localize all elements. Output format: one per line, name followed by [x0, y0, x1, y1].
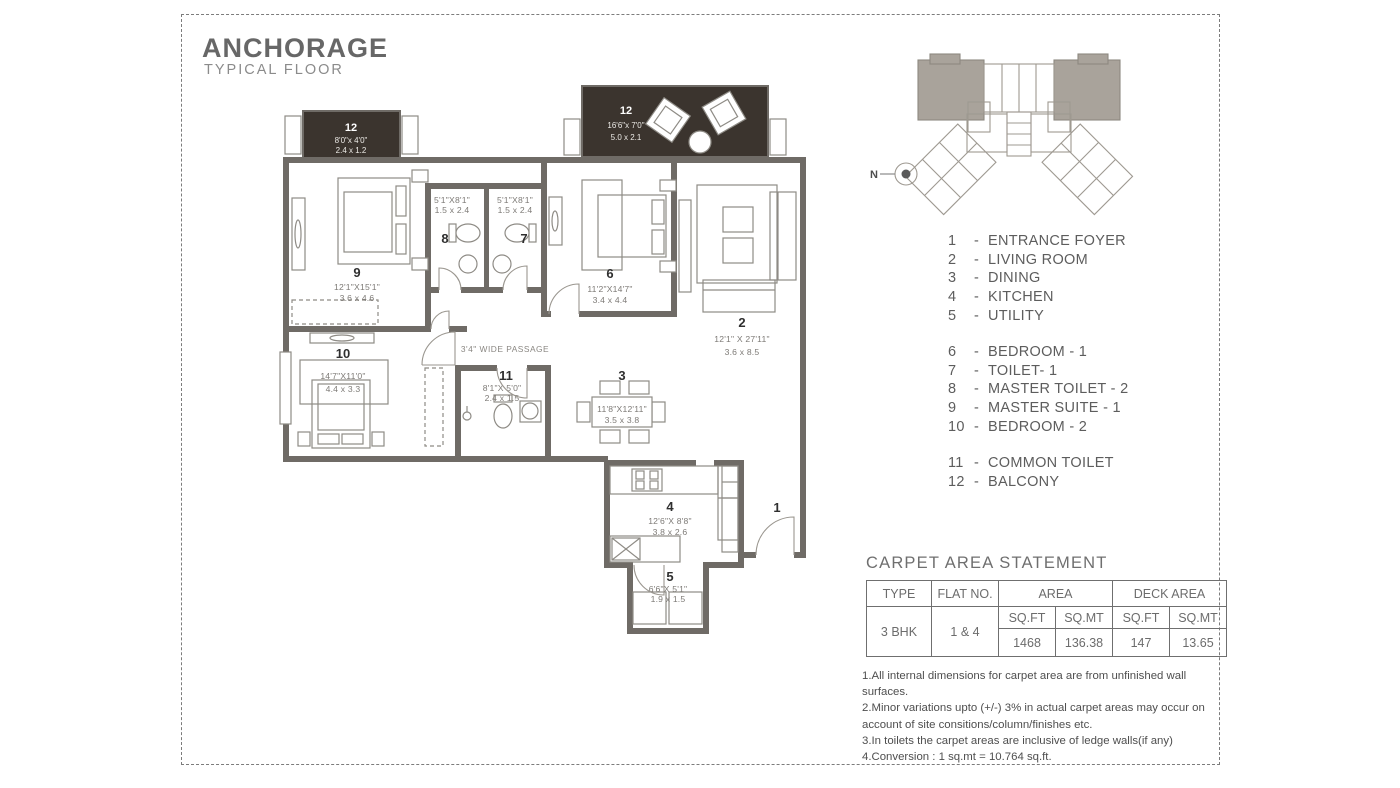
- legend-group-1: 1-ENTRANCE FOYER 2-LIVING ROOM 3-DINING …: [948, 232, 1128, 325]
- room-dim-ft: 16'6"x 7'0": [607, 121, 644, 130]
- room-dim-m: 4.4 x 3.3: [326, 384, 361, 394]
- room-dim-ft: 14'7"X11'0": [320, 371, 365, 381]
- window-icon: [285, 116, 301, 154]
- dresser-icon: [292, 198, 305, 270]
- col-area-sqmt: SQ.MT: [1056, 607, 1113, 629]
- legend-item: 1-ENTRANCE FOYER: [948, 232, 1128, 251]
- legend-label: BALCONY: [988, 474, 1059, 490]
- room-dim-ft: 12'1" X 27'11": [714, 334, 770, 344]
- room-legend: 1-ENTRANCE FOYER 2-LIVING ROOM 3-DINING …: [948, 232, 1128, 509]
- room-11-common-toilet: 11 8'1"X 5'0" 2.4 x 1.5: [463, 368, 541, 428]
- col-deck-sqft: SQ.FT: [1113, 607, 1170, 629]
- legend-label: KITCHEN: [988, 289, 1054, 305]
- counter-icon: [610, 466, 718, 494]
- keyplan-highlighted-unit-right: [1048, 54, 1120, 132]
- room-dim-ft: 11'2"X14'7": [587, 284, 632, 294]
- keyplan-wing-right: [1042, 124, 1133, 215]
- legend-item: 12-BALCONY: [948, 473, 1128, 492]
- col-flat-no: FLAT NO.: [932, 581, 999, 607]
- wardrobe-icon: [425, 368, 443, 446]
- legend-label: ENTRANCE FOYER: [988, 233, 1126, 249]
- room-dim-ft: 5'1"X8'1": [497, 195, 533, 205]
- legend-item: 11-COMMON TOILET: [948, 454, 1128, 473]
- note-4: 4.Conversion : 1 sq.mt = 10.764 sq.ft.: [862, 749, 1214, 765]
- legend-item: 8-MASTER TOILET - 2: [948, 380, 1128, 399]
- toilet-icon: [449, 224, 480, 242]
- room-dim-m: 3.5 x 3.8: [605, 415, 640, 425]
- washbasin-icon: [459, 255, 477, 273]
- room-number: 1: [773, 500, 780, 515]
- legend-label: BEDROOM - 1: [988, 344, 1087, 360]
- room-number: 3: [618, 368, 625, 383]
- legend-dash: -: [974, 252, 988, 268]
- room-dim-ft: 12'1"X15'1": [334, 282, 380, 292]
- brochure-page: ANCHORAGE TYPICAL FLOOR 12 8'0"x 4'0" 2.…: [0, 0, 1400, 788]
- page-subtitle: TYPICAL FLOOR: [204, 62, 344, 78]
- hob-icon: [632, 469, 662, 491]
- keyplan-wing-left: [905, 124, 996, 215]
- rug-icon: [697, 185, 777, 283]
- room-number: 12: [345, 122, 357, 134]
- key-plan: N: [868, 50, 1170, 218]
- walls: [283, 157, 806, 634]
- room-2-living-room: 2 12'1" X 27'11" 3.6 x 8.5: [679, 185, 796, 357]
- room-dim-m: 1.5 x 2.4: [498, 205, 533, 215]
- col-area: AREA: [999, 581, 1113, 607]
- legend-number: 7: [948, 363, 974, 379]
- legend-dash: -: [974, 289, 988, 305]
- rug-icon: [300, 360, 388, 404]
- legend-number: 1: [948, 233, 974, 249]
- wardrobe-icon: [292, 300, 378, 324]
- legend-label: UTILITY: [988, 308, 1044, 324]
- legend-dash: -: [974, 400, 988, 416]
- shoe-cabinet-icon: [722, 466, 738, 552]
- washbasin-icon: [520, 401, 541, 422]
- compass: N: [870, 163, 917, 185]
- room-dim-ft: 12'6"X 8'8": [648, 516, 692, 526]
- legend-label: MASTER TOILET - 2: [988, 381, 1128, 397]
- room-number: 8: [441, 231, 448, 246]
- room-dim-ft: 5'1"X8'1": [434, 195, 470, 205]
- room-dim-m: 3.4 x 4.4: [593, 295, 628, 305]
- legend-number: 2: [948, 252, 974, 268]
- floor-trap-icon: [463, 412, 471, 420]
- legend-number: 9: [948, 400, 974, 416]
- room-dim-ft: 6'6"X 5'1": [649, 584, 688, 594]
- room-9-master-suite: 9 12'1"X15'1" 3.6 x 4.6: [292, 170, 428, 324]
- legend-item: 9-MASTER SUITE - 1: [948, 399, 1128, 418]
- legend-dash: -: [974, 308, 988, 324]
- balcony-12-middle: 12 16'6"x 7'0" 5.0 x 2.1: [564, 86, 786, 157]
- legend-dash: -: [974, 474, 988, 490]
- col-deck-sqmt: SQ.MT: [1170, 607, 1227, 629]
- room-number: 6: [606, 266, 613, 281]
- legend-number: 5: [948, 308, 974, 324]
- cell-deck-sqmt: 13.65: [1170, 629, 1227, 657]
- room-dim-m: 1.5 x 2.4: [435, 205, 470, 215]
- passage-label: 3'4" WIDE PASSAGE: [461, 344, 549, 354]
- room-dim-m: 5.0 x 2.1: [611, 133, 642, 142]
- compass-dot: [902, 170, 911, 179]
- room-number: 2: [738, 315, 745, 330]
- room-10-bedroom-2: 10 14'7"X11'0" 4.4 x 3.3: [298, 333, 443, 448]
- legend-item: 7-TOILET- 1: [948, 362, 1128, 381]
- legend-item: 6-BEDROOM - 1: [948, 343, 1128, 362]
- room-number: 12: [620, 105, 632, 117]
- dresser-icon: [549, 197, 562, 245]
- dresser-icon: [310, 333, 374, 343]
- cell-flat: 1 & 4: [932, 607, 999, 657]
- legend-number: 4: [948, 289, 974, 305]
- room-dim-m: 2.4 x 1.5: [485, 393, 520, 403]
- room-1-entrance-foyer: 1: [722, 466, 781, 552]
- floor-plan: 12 8'0"x 4'0" 2.4 x 1.2 12 16'6"x 7'0" 5…: [260, 80, 820, 655]
- legend-dash: -: [974, 344, 988, 360]
- window-icon: [564, 119, 580, 155]
- window-icon: [402, 116, 418, 154]
- col-type: TYPE: [867, 581, 932, 607]
- fridge-icon: [718, 466, 738, 540]
- room-dim-m: 3.8 x 2.6: [653, 527, 688, 537]
- window-icon: [280, 352, 291, 424]
- room-dim-ft: 8'0"x 4'0": [335, 136, 368, 145]
- legend-label: COMMON TOILET: [988, 455, 1114, 471]
- legend-item: 3-DINING: [948, 269, 1128, 288]
- legend-item: 2-LIVING ROOM: [948, 251, 1128, 270]
- legend-dash: -: [974, 363, 988, 379]
- room-4-kitchen: 4 12'6"X 8'8" 3.8 x 2.6: [610, 466, 738, 562]
- legend-label: MASTER SUITE - 1: [988, 400, 1121, 416]
- legend-dash: -: [974, 233, 988, 249]
- room-number: 5: [666, 569, 673, 584]
- window-icon: [770, 119, 786, 155]
- cell-area-sqft: 1468: [999, 629, 1056, 657]
- legend-number: 11: [948, 455, 974, 471]
- legend-label: LIVING ROOM: [988, 252, 1088, 268]
- bed-icon: [582, 180, 676, 272]
- carpet-area-table: TYPE FLAT NO. AREA DECK AREA 3 BHK 1 & 4…: [866, 580, 1227, 657]
- col-area-sqft: SQ.FT: [999, 607, 1056, 629]
- carpet-area-heading: CARPET AREA STATEMENT: [866, 554, 1108, 573]
- legend-item: 10-BEDROOM - 2: [948, 417, 1128, 436]
- room-5-utility: 5 6'6"X 5'1" 1.9 x 1.5: [633, 569, 702, 624]
- room-7-toilet: 7 5'1"X8'1" 1.5 x 2.4: [493, 195, 536, 273]
- room-dim-m: 2.4 x 1.2: [336, 146, 367, 155]
- legend-dash: -: [974, 381, 988, 397]
- note-1: 1.All internal dimensions for carpet are…: [862, 668, 1214, 700]
- tv-unit-icon: [679, 200, 691, 292]
- room-dim-m: 1.9 x 1.5: [651, 594, 686, 604]
- door-arc-room10: [422, 332, 455, 365]
- room-number: 4: [666, 499, 674, 514]
- cell-deck-sqft: 147: [1113, 629, 1170, 657]
- cell-area-sqmt: 136.38: [1056, 629, 1113, 657]
- legend-label: TOILET- 1: [988, 363, 1057, 379]
- col-deck-area: DECK AREA: [1113, 581, 1227, 607]
- legend-number: 8: [948, 381, 974, 397]
- room-number: 9: [353, 265, 360, 280]
- sink-icon: [610, 536, 680, 562]
- legend-item: 4-KITCHEN: [948, 288, 1128, 307]
- room-3-dining: 3 11'8"X12'11" 3.5 x 3.8: [577, 368, 665, 443]
- cell-type: 3 BHK: [867, 607, 932, 657]
- balcony-table-icon: [689, 131, 711, 153]
- legend-label: BEDROOM - 2: [988, 419, 1087, 435]
- note-3: 3.In toilets the carpet areas are inclus…: [862, 733, 1214, 749]
- room-dim-m: 3.6 x 8.5: [725, 347, 760, 357]
- room-dim-m: 3.6 x 4.6: [340, 293, 375, 303]
- legend-number: 10: [948, 419, 974, 435]
- legend-group-2: 6-BEDROOM - 1 7-TOILET- 1 8-MASTER TOILE…: [948, 343, 1128, 436]
- legend-number: 12: [948, 474, 974, 490]
- legend-label: DINING: [988, 270, 1041, 286]
- room-number: 7: [520, 231, 527, 246]
- washbasin-icon: [493, 255, 511, 273]
- room-dim-ft: 11'8"X12'11": [597, 404, 647, 414]
- balcony-12-left: 12 8'0"x 4'0" 2.4 x 1.2: [285, 111, 418, 158]
- legend-number: 3: [948, 270, 974, 286]
- legend-number: 6: [948, 344, 974, 360]
- bed-icon: [338, 170, 428, 270]
- disclaimer-notes: 1.All internal dimensions for carpet are…: [862, 668, 1214, 765]
- door-arc-main-entrance: [756, 517, 794, 555]
- note-2: 2.Minor variations upto (+/-) 3% in actu…: [862, 700, 1214, 732]
- legend-item: 5-UTILITY: [948, 306, 1128, 325]
- room-8-master-toilet: 8 5'1"X8'1" 1.5 x 2.4: [434, 195, 480, 273]
- keyplan-highlighted-unit-left: [918, 54, 990, 132]
- legend-dash: -: [974, 270, 988, 286]
- legend-dash: -: [974, 455, 988, 471]
- sofa-icon: [703, 192, 796, 312]
- page-title: ANCHORAGE: [202, 33, 388, 64]
- room-number: 11: [499, 368, 513, 383]
- legend-group-3: 11-COMMON TOILET 12-BALCONY: [948, 454, 1128, 491]
- compass-label: N: [870, 169, 878, 181]
- door-arc-toilet8: [439, 268, 461, 290]
- door-arc-room6: [549, 284, 579, 314]
- room-number: 10: [336, 346, 350, 361]
- legend-dash: -: [974, 419, 988, 435]
- door-arc-room9: [431, 311, 449, 329]
